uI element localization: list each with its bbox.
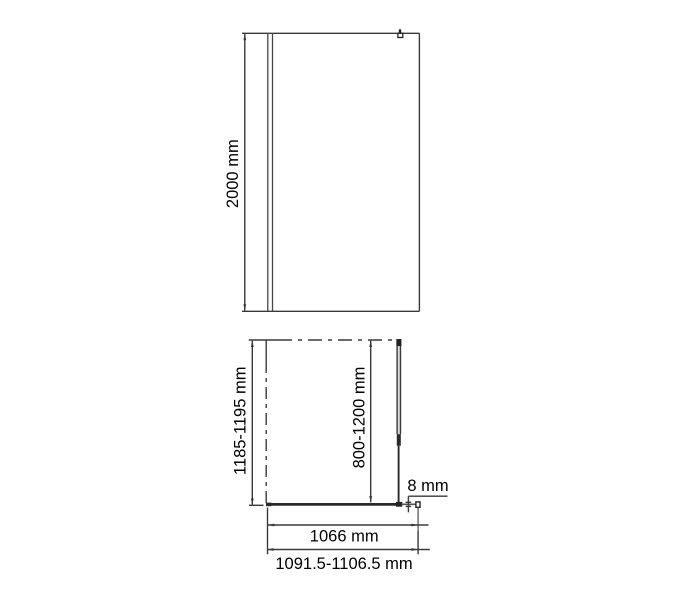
svg-text:8 mm: 8 mm (407, 477, 448, 495)
svg-text:1185-1195 mm: 1185-1195 mm (232, 367, 250, 476)
svg-text:800-1200 mm: 800-1200 mm (351, 367, 369, 469)
svg-text:1066 mm: 1066 mm (310, 528, 379, 546)
svg-text:2000 mm: 2000 mm (224, 139, 242, 208)
svg-text:1091.5-1106.5 mm: 1091.5-1106.5 mm (275, 555, 412, 573)
